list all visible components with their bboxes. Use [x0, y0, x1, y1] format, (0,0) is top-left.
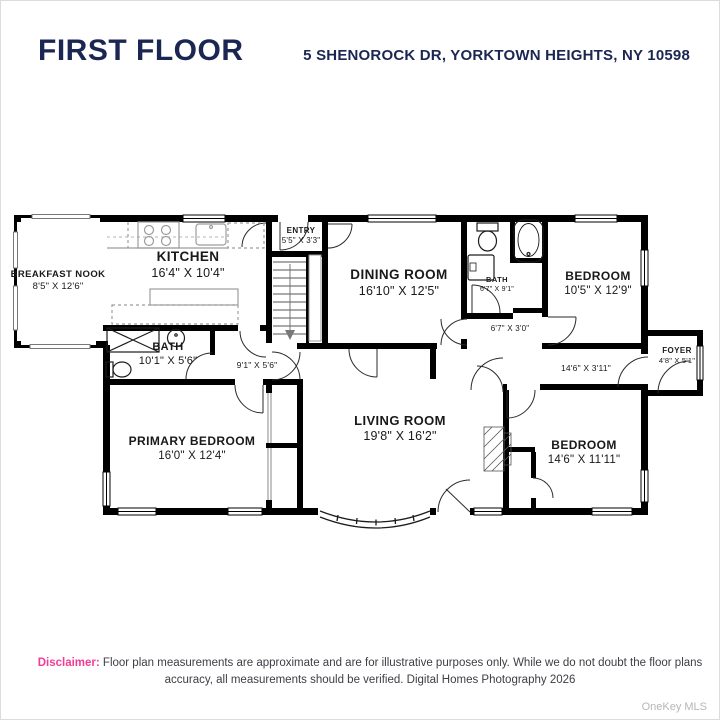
room-label-primary-bedroom: PRIMARY BEDROOM 16'0" X 12'4" — [129, 434, 256, 463]
staircase — [273, 255, 321, 341]
disclaimer-body: Floor plan measurements are approximate … — [100, 657, 703, 686]
toilet — [479, 231, 497, 251]
hall-dims-upper: 6'7" X 3'0" — [491, 324, 530, 334]
room-label-entry: ENTRY 5'5" X 3'3" — [282, 226, 321, 247]
room-label-dining-room: DINING ROOM 16'10" X 12'5" — [350, 267, 447, 300]
upper-bath-fixtures — [468, 220, 543, 280]
floor-plan-page: FIRST FLOOR 5 SHENOROCK DR, YORKTOWN HEI… — [0, 0, 720, 720]
toilet-tank — [477, 223, 498, 231]
kitchen-peninsula — [150, 289, 238, 305]
toilet — [113, 362, 131, 377]
room-label-living-room: LIVING ROOM 19'8" X 16'2" — [354, 413, 446, 445]
hall-dims-lower: 14'6" X 3'11" — [561, 363, 611, 374]
disclaimer-text: Disclaimer: Floor plan measurements are … — [35, 655, 705, 689]
room-label-kitchen: KITCHEN 16'4" X 10'4" — [151, 249, 224, 282]
room-label-breakfast-nook: BREAKFAST NOOK 8'5" X 12'6" — [11, 269, 106, 293]
stairs-down-arrow — [285, 330, 295, 340]
room-label-bedroom-upper: BEDROOM 10'5" X 12'9" — [564, 269, 632, 298]
room-label-foyer: FOYER 4'8" X 5'1" — [659, 346, 695, 366]
refrigerator — [228, 223, 264, 248]
hall-dims-main: 9'1" X 5'6" — [237, 360, 278, 371]
bay-window — [320, 511, 430, 528]
bedroom-closet — [509, 447, 553, 508]
kitchen-sink — [196, 224, 226, 245]
disclaimer-label: Disclaimer: — [38, 657, 100, 669]
primary-closets — [266, 385, 302, 508]
mls-credit: OneKey MLS — [642, 701, 707, 713]
room-label-bath-main: BATH 10'1" X 5'6" — [139, 341, 197, 369]
room-label-bath-upper: BATH 6'7" X 9'1" — [480, 275, 514, 294]
room-label-bedroom-lower: BEDROOM 14'6" X 11'11" — [548, 438, 620, 467]
